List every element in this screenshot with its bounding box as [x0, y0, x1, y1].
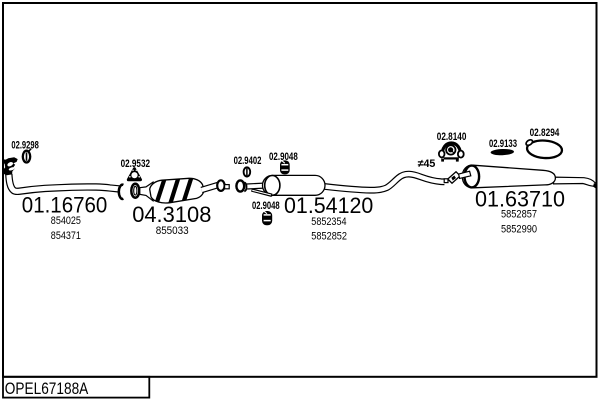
svg-text:02.9048: 02.9048: [252, 200, 280, 212]
svg-text:855033: 855033: [156, 225, 189, 237]
svg-text:01.54120: 01.54120: [284, 193, 373, 218]
svg-text:854371: 854371: [51, 230, 81, 242]
svg-text:OPEL67188A: OPEL67188A: [5, 380, 89, 398]
svg-text:04.3108: 04.3108: [132, 202, 211, 227]
svg-text:02.9133: 02.9133: [489, 138, 517, 150]
svg-text:02.9298: 02.9298: [11, 140, 38, 152]
svg-text:5852857: 5852857: [501, 208, 537, 220]
svg-text:02.8140: 02.8140: [437, 131, 467, 143]
svg-text:5852852: 5852852: [311, 230, 347, 242]
svg-text:≠45: ≠45: [418, 158, 436, 170]
svg-text:02.9402: 02.9402: [234, 155, 262, 167]
svg-text:5852990: 5852990: [501, 223, 537, 235]
svg-text:854025: 854025: [51, 215, 81, 227]
svg-text:02.8294: 02.8294: [530, 127, 560, 139]
svg-text:5852354: 5852354: [311, 216, 346, 228]
svg-text:02.9048: 02.9048: [269, 151, 298, 163]
svg-text:01.16760: 01.16760: [22, 193, 108, 218]
svg-text:02.9532: 02.9532: [121, 158, 150, 170]
